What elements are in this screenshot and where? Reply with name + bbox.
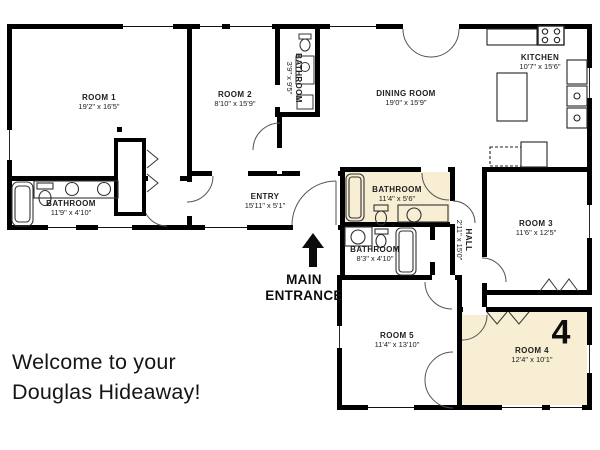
main-entrance-line2: ENTRANCE	[265, 288, 342, 304]
bathroom-top-name: BATHROOM	[294, 53, 303, 103]
bathroom-highlight-label: BATHROOM 11'4" x 5'6"	[372, 185, 422, 203]
dining-room-dims: 19'0" x 15'9"	[376, 98, 436, 107]
entry-dims: 15'11" x 5'1"	[245, 201, 286, 210]
bathroom-top-dims: 3'9" x 9'5"	[285, 53, 294, 103]
room1-name: ROOM 1	[78, 93, 119, 102]
entry-label: ENTRY 15'11" x 5'1"	[245, 192, 286, 210]
hall-name: HALL	[464, 220, 473, 261]
room3-dims: 11'6" x 12'5"	[516, 228, 557, 237]
bathroom-highlight-dims: 11'4" x 5'6"	[372, 194, 422, 203]
room1-dims: 19'2" x 16'5"	[78, 102, 119, 111]
up-arrow-icon	[302, 233, 324, 267]
bathroom-mid-label: BATHROOM 8'3" x 4'10"	[350, 245, 400, 263]
bathroom-mid-dims: 8'3" x 4'10"	[350, 254, 400, 263]
room3-name: ROOM 3	[516, 219, 557, 228]
bathroom-left-label: BATHROOM 11'9" x 4'10"	[46, 199, 96, 217]
room4-label: ROOM 4 12'4" x 10'1"	[511, 346, 552, 364]
hall-dims: 2'11" x 15'0"	[455, 220, 464, 261]
main-entrance-label: MAIN ENTRANCE	[265, 272, 342, 304]
room3-label: ROOM 3 11'6" x 12'5"	[516, 219, 557, 237]
dining-room-name: DINING ROOM	[376, 89, 436, 98]
bathroom-left-name: BATHROOM	[46, 199, 96, 208]
room2-label: ROOM 2 8'10" x 15'9"	[214, 90, 255, 108]
room5-label: ROOM 5 11'4" x 13'10"	[375, 331, 420, 349]
room5-dims: 11'4" x 13'10"	[375, 340, 420, 349]
welcome-line1: Welcome to your	[12, 347, 201, 377]
room4-name: ROOM 4	[511, 346, 552, 355]
bathroom-highlight-name: BATHROOM	[372, 185, 422, 194]
kitchen-label: KITCHEN 10'7" x 15'6"	[519, 53, 560, 71]
bathroom-top-label: BATHROOM 3'9" x 9'5"	[285, 53, 303, 103]
room5-name: ROOM 5	[375, 331, 420, 340]
kitchen-name: KITCHEN	[519, 53, 560, 62]
room4-dims: 12'4" x 10'1"	[511, 355, 552, 364]
welcome-line2: Douglas Hideaway!	[12, 377, 201, 407]
bathroom-left-area	[7, 176, 192, 230]
room1-label: ROOM 1 19'2" x 16'5"	[78, 93, 119, 111]
main-entrance-line1: MAIN	[265, 272, 342, 288]
floorplan-canvas: ROOM 1 19'2" x 16'5" ROOM 2 8'10" x 15'9…	[0, 0, 600, 450]
bathroom-mid-name: BATHROOM	[350, 245, 400, 254]
entry-name: ENTRY	[245, 192, 286, 201]
dining-room-label: DINING ROOM 19'0" x 15'9"	[376, 89, 436, 107]
room2-name: ROOM 2	[214, 90, 255, 99]
welcome-text: Welcome to your Douglas Hideaway!	[12, 347, 201, 407]
hall-label: HALL 2'11" x 15'0"	[455, 220, 473, 261]
kitchen-dims: 10'7" x 15'6"	[519, 62, 560, 71]
unit-number-badge: 4	[552, 314, 571, 353]
bathroom-left-dims: 11'9" x 4'10"	[46, 208, 96, 217]
room2-dims: 8'10" x 15'9"	[214, 99, 255, 108]
